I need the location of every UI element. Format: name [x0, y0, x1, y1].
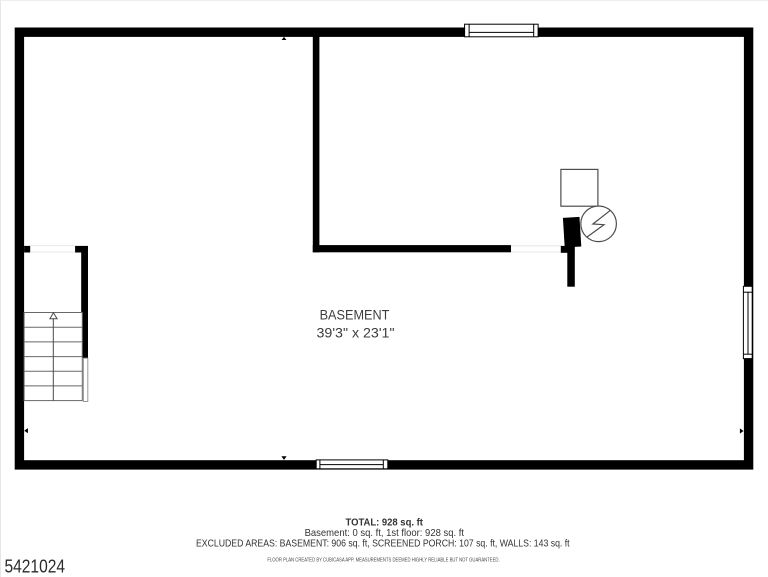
svg-text:39'3" x 23'1": 39'3" x 23'1" [317, 326, 395, 341]
svg-text:EXCLUDED AREAS: BASEMENT: 906: EXCLUDED AREAS: BASEMENT: 906 sq. ft, SC… [196, 539, 570, 550]
svg-text:5421024: 5421024 [5, 556, 66, 576]
svg-text:TOTAL: 928 sq. ft: TOTAL: 928 sq. ft [346, 517, 424, 529]
svg-text:Basement: 0 sq. ft, 1st floor:: Basement: 0 sq. ft, 1st floor: 928 sq. f… [305, 528, 465, 539]
svg-text:BASEMENT: BASEMENT [320, 308, 390, 323]
svg-text:FLOOR PLAN CREATED BY CUBICASA: FLOOR PLAN CREATED BY CUBICASA APP. MEAS… [267, 557, 499, 563]
